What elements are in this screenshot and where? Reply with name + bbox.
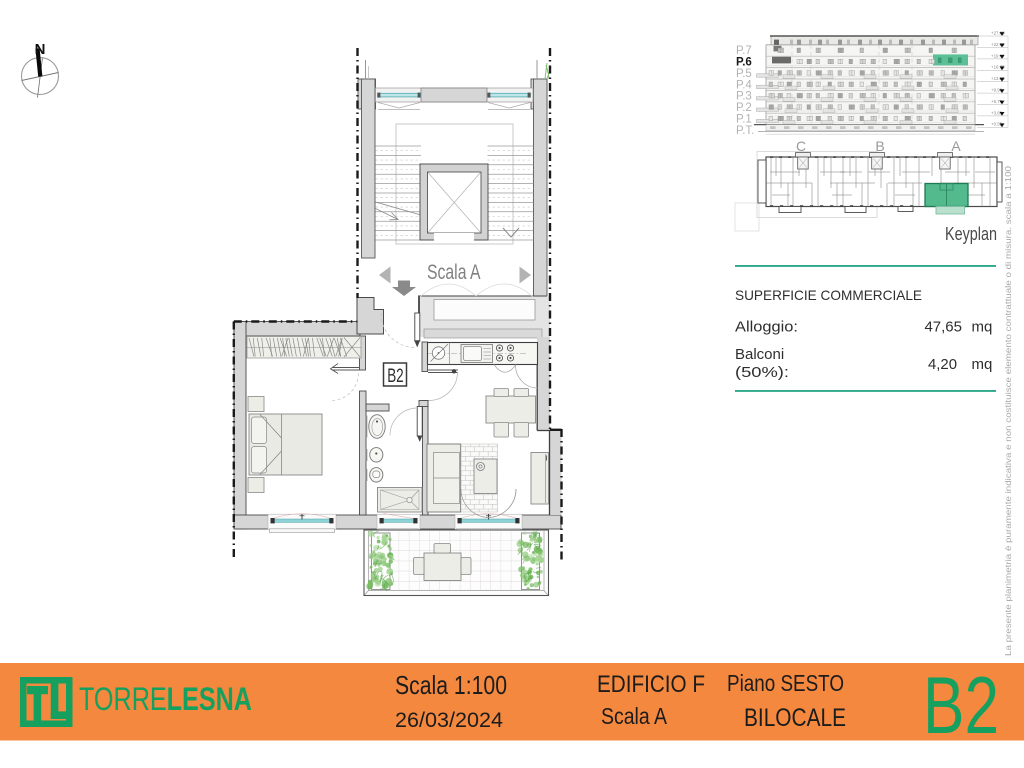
svg-text:4,20: 4,20	[928, 356, 957, 373]
svg-text:SUPERFICIE COMMERCIALE: SUPERFICIE COMMERCIALE	[735, 287, 922, 303]
svg-text:N: N	[35, 41, 46, 58]
svg-text:P.1: P.1	[736, 113, 752, 125]
svg-text:P.3: P.3	[736, 91, 752, 103]
svg-text:P.T.: P.T.	[736, 125, 754, 137]
svg-text:EDIFICIO F: EDIFICIO F	[597, 671, 705, 698]
svg-text:mq: mq	[972, 319, 993, 336]
svg-text:B2: B2	[923, 661, 999, 751]
svg-text:A: A	[951, 138, 961, 154]
svg-text:P.7: P.7	[736, 45, 752, 57]
svg-text:Scala A: Scala A	[601, 703, 668, 729]
svg-text:Scala A: Scala A	[427, 261, 481, 284]
svg-text:Alloggio:: Alloggio:	[735, 319, 798, 336]
svg-text:TORRELESNA: TORRELESNA	[79, 681, 252, 717]
svg-text:26/03/2024: 26/03/2024	[395, 708, 503, 732]
svg-text:P.4: P.4	[736, 79, 752, 91]
svg-text:Piano SESTO: Piano SESTO	[727, 670, 844, 696]
svg-text:P.5: P.5	[736, 68, 752, 80]
svg-text:Keyplan: Keyplan	[945, 224, 997, 244]
svg-text:(50%):: (50%):	[735, 364, 789, 381]
svg-text:P.2: P.2	[736, 102, 752, 114]
svg-text:B2: B2	[387, 366, 404, 387]
svg-text:47,65: 47,65	[924, 319, 962, 336]
svg-text:BILOCALE: BILOCALE	[744, 704, 846, 732]
svg-text:mq: mq	[972, 356, 993, 373]
svg-text:Balconi: Balconi	[735, 346, 784, 363]
svg-text:La presente planimetria è pura: La presente planimetria è puramente indi…	[1004, 165, 1013, 656]
svg-text:P.6: P.6	[736, 57, 752, 69]
svg-text:Scala 1:100: Scala 1:100	[395, 670, 507, 700]
